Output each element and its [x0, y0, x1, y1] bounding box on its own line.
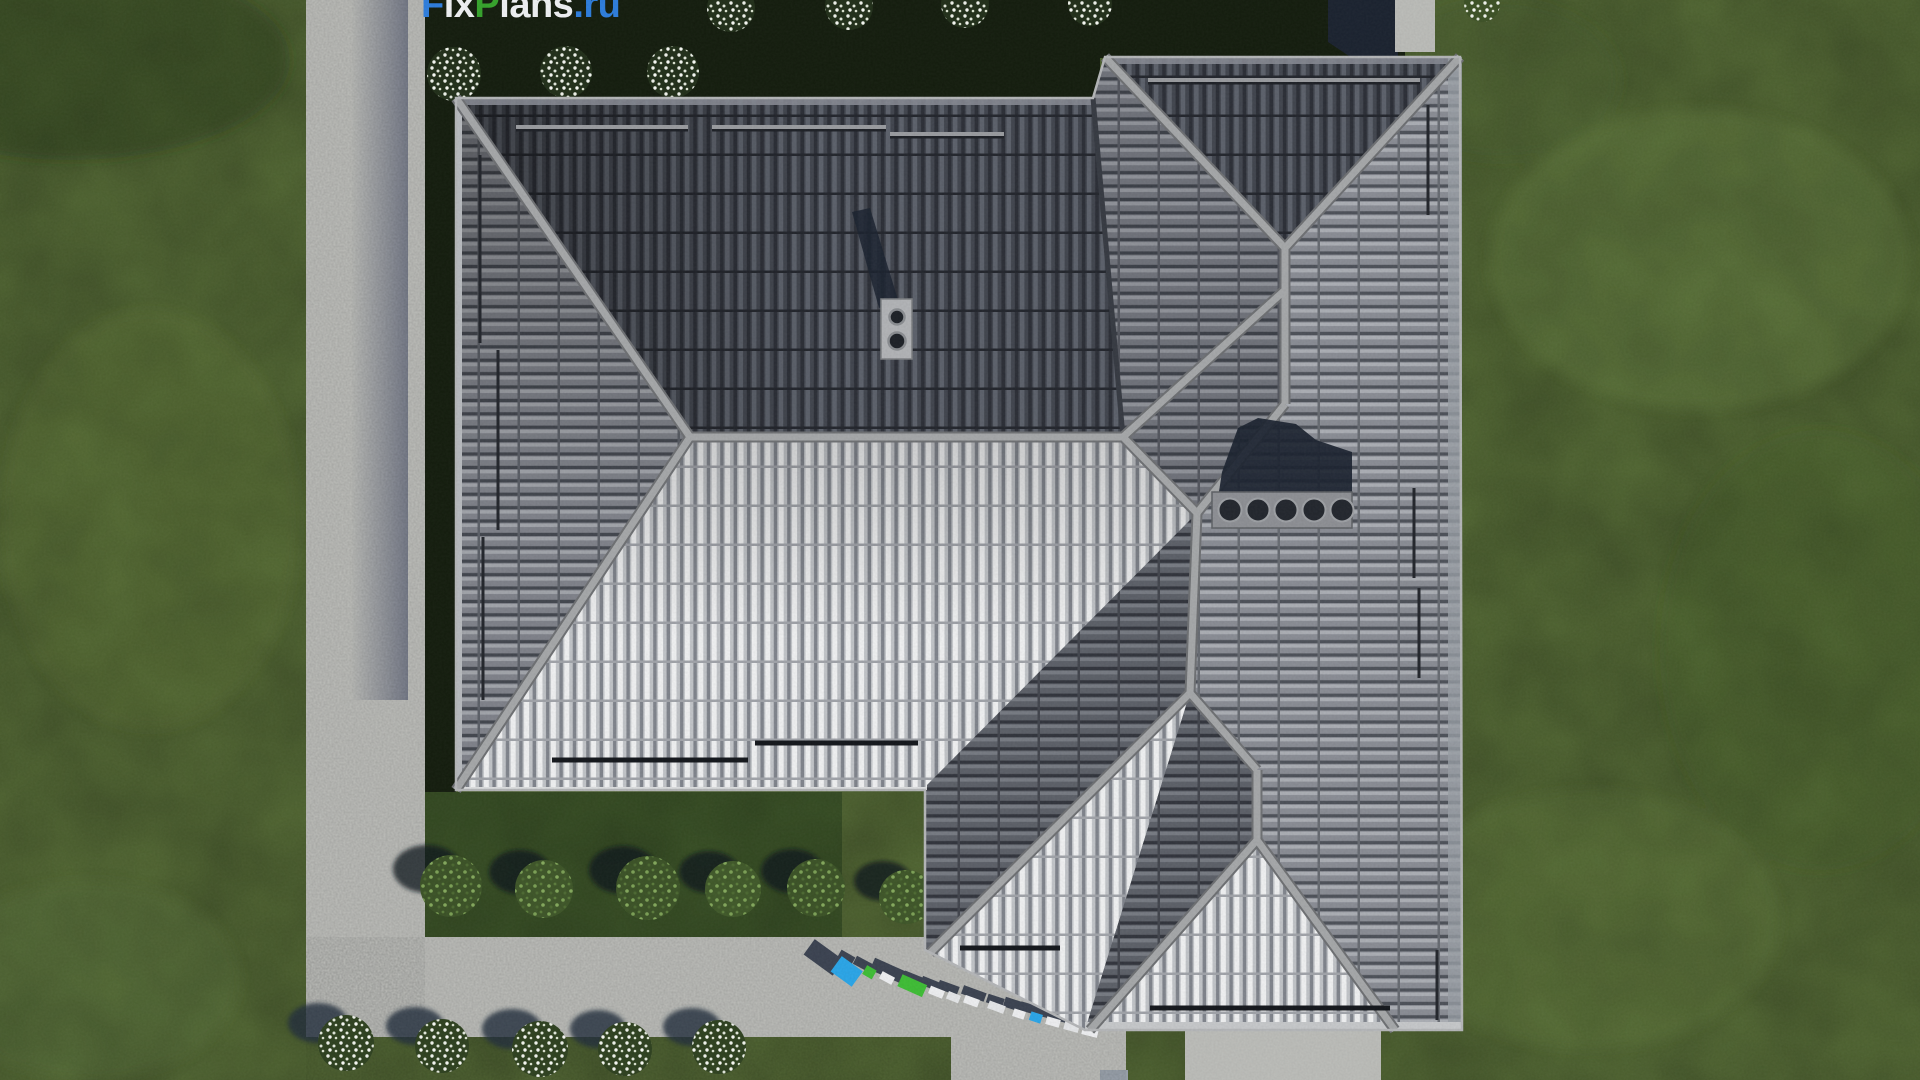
aerial-roof-render: FixPlans.ru: [0, 0, 1920, 1080]
render-grain-light: [0, 0, 1920, 1080]
render-viewport: FixPlans.ru: [0, 0, 1920, 1080]
